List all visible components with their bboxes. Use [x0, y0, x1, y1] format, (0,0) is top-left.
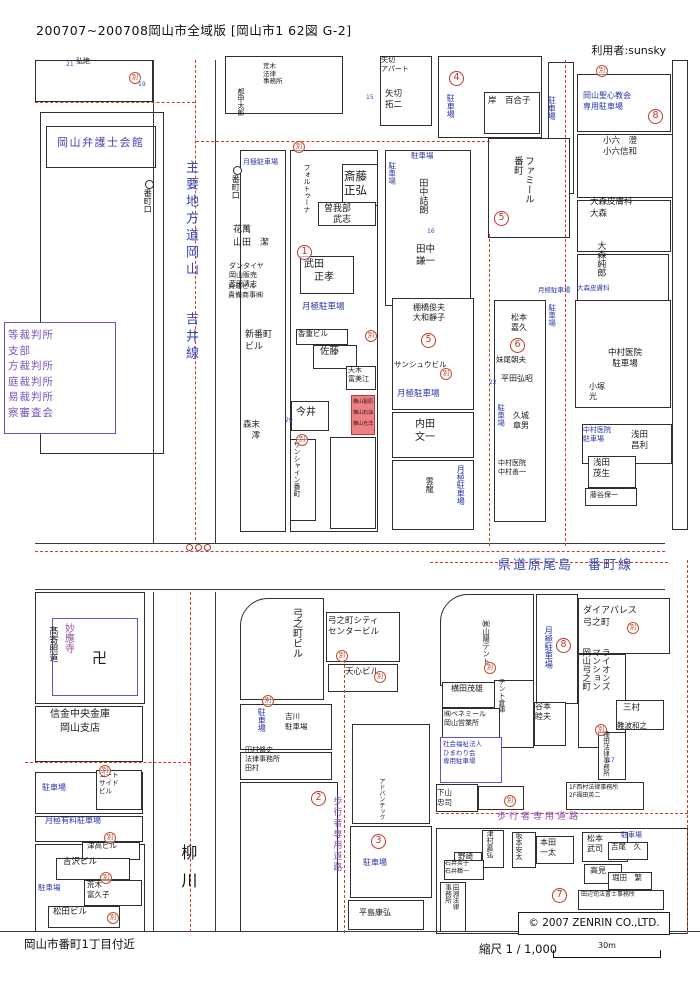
building-label: 棚橋俊夫 大和靜子: [413, 303, 445, 323]
building-label: 田淵法律 事務所: [443, 884, 458, 910]
parking-label: 駐車場: [446, 94, 455, 118]
parking-label: 月極駐車場: [456, 465, 465, 505]
building-label: 矢切 アパート: [381, 56, 409, 73]
building-label: サンシャイン番町: [293, 441, 301, 497]
building-label: 曽我部 武志: [324, 204, 351, 226]
district-boundary-line: [565, 60, 566, 546]
building-block: [240, 782, 338, 932]
building-label: 中村医院 駐車場: [608, 348, 642, 370]
parking-label: 月極駐車場: [397, 390, 440, 400]
building-label: 高見: [590, 866, 606, 875]
building-label: 本田 一太: [540, 838, 556, 858]
building-label: 岸 百合子: [488, 97, 531, 107]
parking-label: 駐車場: [42, 783, 66, 792]
parking-label: 駐車場: [547, 96, 556, 120]
street-name: 吉井線: [182, 312, 197, 363]
block-number-badge: 5: [421, 333, 436, 348]
building-block: [240, 598, 324, 700]
temple-icon: 卍: [92, 650, 107, 667]
parking-label: 駐車場: [621, 831, 642, 839]
building-label: 横田茂雄: [451, 684, 483, 693]
parking-label: 駐車場: [387, 162, 396, 185]
building-label: 弘絶: [76, 57, 90, 65]
building-label: 松本 武司: [587, 834, 603, 854]
building-label: 松田ビル: [53, 908, 87, 918]
building-label: 今井: [296, 407, 316, 419]
parking-label: 月極駐車場: [243, 158, 278, 166]
building-label: 弓之町シティ センタービル: [328, 616, 379, 638]
block-number-badge: 8: [648, 109, 663, 124]
betsu-mark: 別: [627, 622, 639, 634]
building-label: 下山 忠司: [437, 788, 452, 807]
pedestrian-road-label: 歩行者専用道路: [497, 812, 581, 822]
building-label: 堀田 繁: [612, 874, 642, 883]
building-label: 小六 澄 小六信和: [603, 136, 637, 158]
betsu-mark: 別: [129, 72, 141, 84]
building-label: 久城 章男: [513, 411, 529, 431]
block-number-badge: 4: [449, 71, 464, 86]
betsu-mark: 別: [595, 724, 607, 736]
building-label: 荒木 法律 事務所: [263, 63, 283, 86]
building-label: 谷本 睦夫: [535, 702, 551, 722]
building-label: アドバンテック: [377, 778, 384, 820]
betsu-mark: 別: [262, 695, 274, 707]
building-label: 大森皮膚科 大森: [590, 196, 633, 220]
user-label: 利用者:sunsky: [591, 42, 666, 58]
district-boundary-line: [687, 560, 688, 933]
district-boundary-line: [35, 102, 195, 103]
district-boundary-line: [25, 762, 191, 763]
lot-number: 17: [607, 758, 615, 765]
parking-label: 社会福祉法人 ひまわり会 専用駐車場: [443, 740, 482, 766]
parking-label: 駐車場: [257, 708, 266, 732]
building-label: 貴運ビル 貴備商事㈱: [228, 282, 263, 300]
betsu-mark: 別: [336, 650, 348, 662]
building-label: ㈱山陽テント: [481, 620, 490, 665]
lot-number: 22: [489, 380, 497, 387]
map-area-name: 岡山市番町1丁目付近: [24, 936, 135, 952]
building-label: 田中 謙一: [416, 244, 435, 268]
district-boundary-line: [344, 660, 345, 933]
betsu-mark: 別: [484, 662, 496, 674]
betsu-mark: 別: [293, 141, 305, 153]
building-label: 坂本安太: [515, 832, 523, 860]
betsu-mark: 別: [99, 765, 111, 777]
building-label: 弓之町ビル: [290, 608, 302, 658]
building-label: 都甲太郎: [237, 88, 245, 116]
block-number-badge: 1: [297, 245, 312, 260]
building-label: 花萬 山田 潔: [233, 224, 269, 250]
block-number-badge: 7: [552, 888, 567, 903]
building-label: 田辺司法書士事務所: [581, 892, 635, 899]
block-number-badge: 8: [556, 638, 571, 653]
building-label: 津村嘉弘: [486, 830, 494, 858]
street-name: 県道原尾島 番町線: [498, 559, 633, 574]
building-label: テント倉庫: [498, 678, 506, 713]
building-label: 小塚 光: [589, 382, 605, 402]
building-label: 平田弘昭: [501, 374, 533, 383]
facility-label: 岡山弁護士会館: [57, 137, 145, 150]
building-label: ㈱ベネミール 岡山営業所: [444, 710, 486, 728]
building-label: 雲龍: [425, 477, 434, 493]
courthouse-label: 等裁判所 支部 方裁判所 庭裁判所 易裁判所 察審査会: [8, 328, 54, 421]
district-boundary-line: [489, 234, 490, 546]
building-label: ライオンズ マンション 岡山弓之町: [580, 648, 609, 691]
parking-label: 月極駐車場: [538, 287, 571, 294]
building-block: [352, 724, 430, 824]
parking-label: 月極有料駐車場: [45, 816, 101, 825]
building-label: 石井英子 石井鶴一: [445, 860, 469, 876]
building-label: 信金中央金庫 岡山支店: [50, 708, 110, 735]
road-edge-line: [215, 60, 216, 543]
district-boundary-line: [196, 141, 490, 142]
building-label: 吉沢ビル: [63, 858, 97, 868]
building-label: 難波和之: [617, 722, 647, 731]
building-label: 斎藤 正弘: [344, 169, 367, 197]
betsu-mark: 別: [107, 912, 119, 924]
road-edge-line: [215, 592, 216, 932]
street-name: 主要地方道岡山: [182, 160, 197, 279]
building-label: 香重ビル: [298, 330, 328, 339]
building-label: 浅田 茂生: [593, 458, 610, 480]
building-block: [330, 437, 376, 529]
block-number-badge: 6: [510, 338, 525, 353]
betsu-mark: 別: [365, 330, 377, 342]
parking-label: 駐車場: [547, 304, 556, 327]
scale-bar-line: [553, 957, 661, 958]
parking-label: 駐車場: [363, 858, 387, 867]
scale-bar-distance: 30m: [553, 941, 661, 950]
building-label: 吉川 駐車場: [285, 712, 308, 731]
building-label: 1F西村法律事務所 2F福田英二: [569, 784, 618, 800]
parking-label: 月極駐車場: [302, 303, 345, 313]
block-number-badge: 3: [371, 834, 386, 849]
building-label: 田中詰朗: [417, 178, 427, 214]
betsu-mark: 別: [504, 795, 516, 807]
pedestrian-road-label: 歩行者専用道路: [331, 796, 341, 873]
bus-stop-label: 番町口: [231, 175, 240, 199]
bus-stop-label: 番町口: [143, 189, 152, 213]
district-boundary-line: [35, 551, 665, 552]
temple-label: 妙應寺: [62, 623, 74, 653]
building-label: 佐藤: [320, 347, 339, 358]
road-edge-line: [35, 589, 665, 590]
betsu-mark: 別: [374, 671, 386, 683]
betsu-mark: 別: [100, 872, 112, 884]
bus-stop-icon: [233, 166, 242, 175]
scale-bar: 30m: [553, 944, 661, 958]
block-number-badge: 2: [311, 791, 326, 806]
building-label: 矢切 拓二: [385, 89, 402, 110]
lot-number: 19: [138, 82, 146, 89]
parking-label: 中村医院 駐車場: [583, 426, 611, 444]
bus-stop-icon: [145, 180, 154, 189]
lot-number: 29: [285, 418, 293, 425]
copyright-badge: © 2007 ZENRIN CO.,LTD.: [518, 912, 670, 935]
building-label: 内田 文一: [415, 419, 435, 444]
building-label: フォルトゥーナ: [303, 164, 311, 213]
building-label: 髙寄照道: [47, 626, 57, 662]
lot-number: 15: [366, 95, 374, 102]
signal-icon: [204, 544, 211, 551]
building-label: 天木 富美江: [348, 366, 369, 383]
building-label: 浅田 昌利: [631, 430, 648, 452]
building-block: [672, 60, 688, 530]
building-label: 藤谷保一: [590, 491, 618, 499]
building-label: 松本 嘉久: [511, 313, 527, 333]
signal-icon: [186, 544, 193, 551]
building-label: 吉尾 久: [611, 843, 641, 852]
betsu-mark: 別: [596, 65, 608, 77]
building-label: 平島康弘: [359, 908, 391, 917]
block-number-badge: 5: [494, 211, 509, 226]
lot-number: 21: [66, 62, 74, 69]
building-label: 三村: [623, 704, 640, 714]
parking-label: 駐車場: [496, 404, 505, 427]
building-label: 種田法律事務所: [601, 731, 608, 777]
lot-number: 16: [427, 229, 435, 236]
map-viewer-page: 200707~200708岡山市全域版 [岡山市1 62図 G-2] 利用者:s…: [0, 0, 700, 990]
parking-label: 駐車場: [38, 884, 61, 893]
building-label: 妹尾朝夫: [496, 356, 526, 365]
parking-label: 月極駐車場: [542, 626, 552, 669]
building-label: ファミール 番町: [511, 156, 533, 204]
building-label: 田村脩史 法律事務所 田村: [245, 746, 280, 773]
road-edge-line: [35, 543, 665, 544]
page-title: 200707~200708岡山市全域版 [岡山市1 62図 G-2]: [36, 20, 352, 39]
road-edge-line: [153, 60, 154, 544]
building-label: 新番町 ビル: [245, 330, 272, 353]
building-label: 中村医院 中村善一: [498, 459, 526, 477]
scale-label: 縮尺 1 / 1,000: [479, 941, 557, 957]
parking-label: 岡山聖心教会 専用駐車場: [583, 91, 631, 112]
building-label: 大森純郎: [595, 241, 605, 277]
building-label: 森末 澪: [243, 420, 260, 442]
betsu-mark: 別: [296, 434, 308, 446]
signal-icon: [195, 544, 202, 551]
betsu-mark: 別: [440, 368, 452, 380]
parking-label: 大森皮膚科: [577, 285, 610, 292]
building-label: 武田 正孝: [304, 259, 334, 284]
building-label: サンシュウビル: [394, 361, 447, 370]
river-name: 柳川: [178, 844, 196, 900]
parking-label: 駐車場: [411, 152, 434, 161]
betsu-mark: 別: [104, 832, 116, 844]
map-canvas[interactable]: © 2007 ZENRIN CO.,LTD. 弘絶2119岡山弁護士会館等裁判所…: [0, 0, 700, 990]
highlight-text: 横山製原 横山石油 横山光洋: [353, 397, 373, 429]
district-boundary-line: [195, 60, 196, 540]
building-block: [478, 786, 524, 810]
